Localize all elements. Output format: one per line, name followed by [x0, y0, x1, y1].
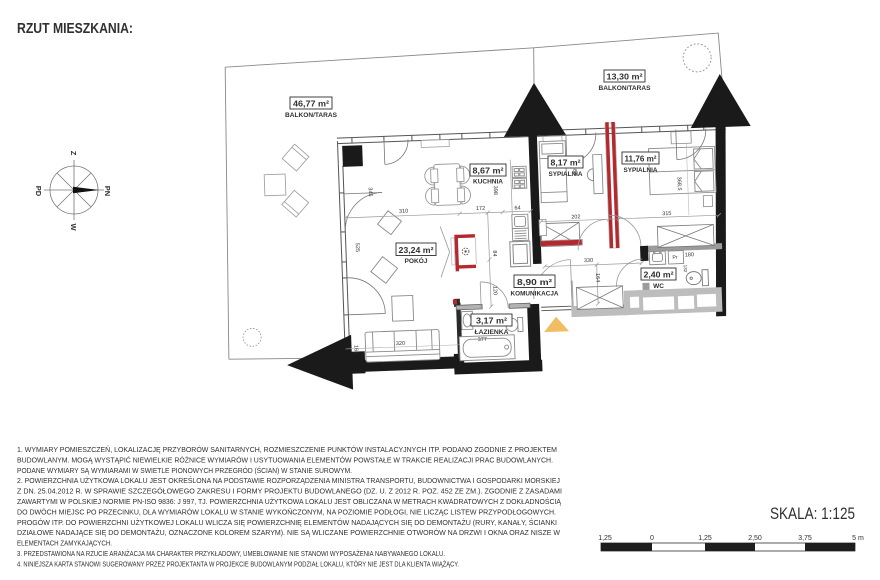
svg-text:KUCHNIA: KUCHNIA — [473, 179, 503, 186]
svg-text:4. NINIEJSZA KARTA STANOWI SUG: 4. NINIEJSZA KARTA STANOWI SUGEROWANY PR… — [17, 559, 459, 568]
svg-text:BALKON/TARAS: BALKON/TARAS — [599, 85, 652, 92]
svg-text:2,40 m²: 2,40 m² — [644, 271, 674, 280]
svg-text:WC: WC — [653, 283, 664, 290]
svg-text:3. PRZEDSTAWIONA NA RZUCIE ARA: 3. PRZEDSTAWIONA NA RZUCIE ARANŻACJA MA … — [17, 549, 445, 558]
svg-text:172: 172 — [476, 206, 485, 212]
svg-text:46,77 m²: 46,77 m² — [293, 100, 329, 109]
svg-text:2. POWIERZCHNIA UŻYTKOWA LOKAL: 2. POWIERZCHNIA UŻYTKOWA LOKALU JEST OKR… — [17, 476, 560, 485]
svg-text:8,90 m²: 8,90 m² — [517, 278, 552, 287]
svg-text:3,75: 3,75 — [798, 535, 812, 542]
svg-text:BUDOWLANYM. MOGĄ WYSTĄPIĆ NIEW: BUDOWLANYM. MOGĄ WYSTĄPIĆ NIEWIELKIE RÓŻ… — [17, 455, 553, 464]
svg-text:11,76 m²: 11,76 m² — [625, 155, 657, 164]
svg-text:Pr: Pr — [672, 255, 678, 261]
svg-text:120: 120 — [491, 286, 497, 295]
svg-text:320: 320 — [396, 341, 405, 347]
svg-text:345: 345 — [367, 187, 373, 196]
svg-text:Z: Z — [69, 151, 78, 156]
svg-text:SYPIALNIA: SYPIALNIA — [624, 167, 658, 174]
svg-text:PODANE WYMIARY SĄ WYMIARAMI W: PODANE WYMIARY SĄ WYMIARAMI W SWIETLE PI… — [17, 466, 352, 475]
svg-text:1,25: 1,25 — [598, 535, 612, 542]
svg-text:Z DN. 25.04.2012 R. W SPRAWIE: Z DN. 25.04.2012 R. W SPRAWIE SZCZEGÓŁOW… — [17, 487, 562, 496]
svg-text:0: 0 — [650, 535, 654, 542]
svg-text:DO DWÓCH MIEJSC PO PRZECINKU,: DO DWÓCH MIEJSC PO PRZECINKU, DLA WYMIAR… — [17, 507, 556, 516]
svg-text:8,17 m²: 8,17 m² — [551, 159, 581, 168]
svg-text:PN: PN — [103, 186, 112, 196]
svg-text:ŁAZIENKA: ŁAZIENKA — [475, 329, 509, 336]
svg-text:BALKON/TARAS: BALKON/TARAS — [285, 112, 338, 119]
svg-text:KOMUNIKACJA: KOMUNIKACJA — [511, 291, 559, 298]
svg-text:13,30 m²: 13,30 m² — [607, 73, 643, 82]
svg-text:202: 202 — [571, 214, 580, 220]
svg-text:5 m: 5 m — [852, 535, 864, 542]
svg-text:SKALA: 1:125: SKALA: 1:125 — [770, 504, 855, 523]
svg-text:POKÓJ: POKÓJ — [405, 256, 428, 265]
svg-text:64: 64 — [514, 205, 520, 211]
svg-text:1,25: 1,25 — [698, 535, 712, 542]
svg-text:ELEMENTACH ZAMYKAJĄCYCH.: ELEMENTACH ZAMYKAJĄCYCH. — [17, 539, 112, 548]
svg-text:DZIAŁOWE NADAJĄCE SIĘ DO DEMON: DZIAŁOWE NADAJĄCE SIĘ DO DEMONTAŻU, OZNA… — [17, 528, 561, 537]
svg-text:W: W — [69, 223, 78, 231]
svg-text:84: 84 — [491, 250, 497, 256]
svg-text:315: 315 — [662, 211, 671, 217]
svg-text:368,5: 368,5 — [676, 177, 683, 191]
svg-text:310: 310 — [399, 209, 408, 215]
svg-text:180: 180 — [685, 252, 694, 258]
svg-text:164: 164 — [594, 273, 600, 282]
svg-text:330: 330 — [584, 258, 593, 264]
svg-text:525: 525 — [354, 243, 360, 252]
svg-text:398: 398 — [492, 186, 498, 195]
svg-text:PD: PD — [34, 186, 43, 197]
svg-text:165: 165 — [352, 345, 358, 354]
svg-text:3,17 m²: 3,17 m² — [476, 317, 507, 326]
svg-text:2,50: 2,50 — [748, 535, 762, 542]
svg-text:8,67 m²: 8,67 m² — [473, 167, 504, 176]
svg-text:ZAWARTYMI W POLSKIEJ NORMIE PN: ZAWARTYMI W POLSKIEJ NORMIE PN-ISO 9836:… — [17, 497, 562, 506]
svg-text:SYPIALNIA: SYPIALNIA — [549, 171, 583, 178]
svg-text:23,24 m²: 23,24 m² — [399, 246, 434, 255]
svg-text:377: 377 — [478, 337, 487, 343]
svg-text:RZUT MIESZKANIA:: RZUT MIESZKANIA: — [17, 20, 133, 37]
svg-text:PROGÓW ITP. DO POWIERZCHNI UŻY: PROGÓW ITP. DO POWIERZCHNI UŻYTKOWEJ LOK… — [17, 518, 557, 527]
svg-text:1. WYMIARY POMIESZCZEŃ, LOKALI: 1. WYMIARY POMIESZCZEŃ, LOKALIZACJĘ PRZY… — [17, 445, 557, 454]
svg-text:132: 132 — [683, 265, 688, 273]
